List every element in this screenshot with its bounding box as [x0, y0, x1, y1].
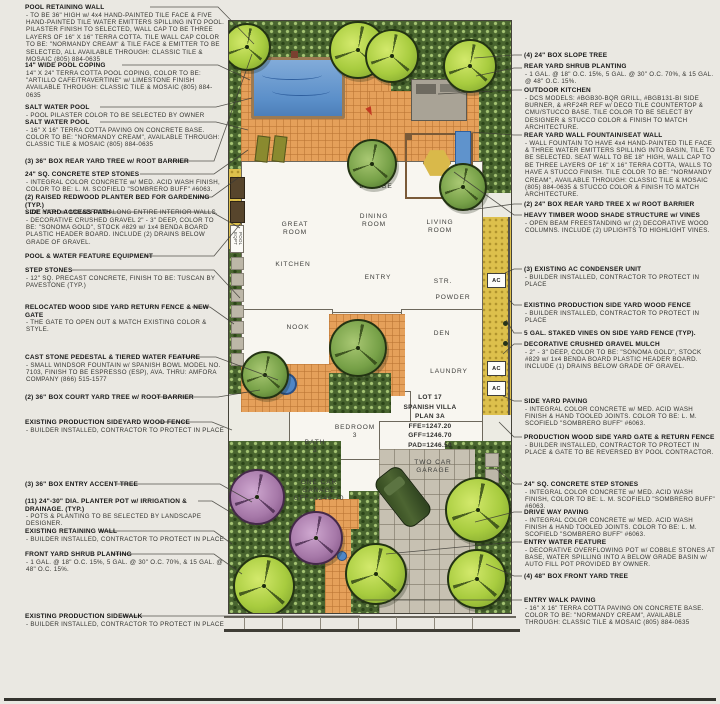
front-yard-tree-symbol [345, 543, 407, 605]
note-side-yard-paving: SIDE YARD PAVING- INTEGRAL COLOR CONCRET… [524, 398, 716, 428]
rear-yard-tree-symbol [365, 29, 419, 83]
note-pool-deck-paving: SALT WATER POOL- 16" X 16" TERRA COTTA P… [25, 119, 225, 149]
note-salt-water-pool: SALT WATER POOL- POOL PILASTER COLOR TO … [25, 104, 225, 119]
pool-wave-line [262, 70, 322, 80]
note-side-yard-gate: PRODUCTION WOOD SIDE YARD GATE & RETURN … [524, 434, 716, 456]
salt-water-pool [251, 57, 345, 119]
bbq-grill [416, 84, 436, 94]
sidewalk-joint [358, 617, 359, 629]
sidewalk-joint [396, 617, 397, 629]
note-court-yard-tree: (2) 36" BOX COURT YARD TREE w/ ROOT BARR… [25, 394, 225, 402]
front-yard-tree-symbol [445, 477, 511, 543]
rear-yard-tree-symbol [347, 139, 397, 189]
pool-pilaster [291, 51, 298, 58]
front-yard-tree-symbol [447, 549, 507, 609]
note-existing-retaining-wall: EXISTING RETAINING WALL- BUILDER INSTALL… [25, 528, 225, 543]
court-yard-tree-symbol [241, 351, 289, 399]
note-rear-yard-shrub-planting: REAR YARD SHRUB PLANTING- 1 GAL. @ 18" O… [524, 63, 716, 85]
note-front-yard-shrub-planting: FRONT YARD SHRUB PLANTING- 1 GAL. @ 18" … [25, 551, 225, 573]
note-front-yard-tree: (4) 48" BOX FRONT YARD TREE [524, 573, 716, 581]
sidewalk-joint [320, 617, 321, 629]
room-label-kitchen: KITCHEN [267, 261, 319, 269]
courtyard-planting [329, 373, 391, 413]
entry-accent-tree-symbol [289, 511, 343, 565]
note-step-stones-right: 24" SQ. CONCRETE STEP STONES- INTEGRAL C… [524, 481, 716, 511]
step-stone [231, 273, 244, 286]
site-plan-sheet: POOL EQPT AC AC AC GREAT ROOM LOUNGE DIN… [0, 0, 720, 704]
site-plan-drawing: POOL EQPT AC AC AC GREAT ROOM LOUNGE DIN… [228, 20, 512, 614]
staked-vine [503, 341, 508, 346]
sidewalk-joint [472, 617, 473, 629]
note-concrete-step-stones: 24" SQ. CONCRETE STEP STONES- INTEGRAL C… [25, 171, 225, 193]
note-entry-accent-tree: (3) 36" BOX ENTRY ACCENT TREE [25, 481, 225, 489]
note-existing-sidewalk: EXISTING PRODUCTION SIDEWALK- BUILDER IN… [25, 613, 225, 628]
label-two-car-garage: TWO CAR GARAGE [401, 459, 465, 475]
staked-vine [503, 321, 508, 326]
side-yard-fence [508, 217, 510, 415]
pool-equipment-tag: POOL EQPT [230, 225, 244, 253]
room-label-laundry: LAUNDRY [421, 368, 477, 376]
note-staked-vines: 5 GAL. STAKED VINES ON SIDE YARD FENCE (… [524, 330, 716, 338]
lot-title-block: LOT 17 SPANISH VILLA PLAN 3A FFE=1247.20… [387, 393, 473, 450]
sidewalk-joint [434, 617, 435, 629]
front-yard-tree-symbol [233, 555, 295, 614]
note-entry-walk-paving: ENTRY WALK PAVING- 16" X 16" TERRA COTTA… [524, 597, 716, 627]
room-label-bath: BATH 3 [299, 439, 331, 455]
note-pool-retaining-wall: POOL RETAINING WALL- TO BE 36" HIGH w/ 4… [25, 4, 225, 63]
room-label-bedroom: BEDROOM 3 [329, 424, 381, 440]
room-label-den: DEN [425, 330, 459, 338]
ac-condenser-unit: AC [487, 273, 506, 288]
note-side-yard-access-path: SIDE YARD ACCESS PATH- DECORATIVE CRUSHE… [25, 209, 225, 246]
step-stone [231, 257, 244, 270]
curb-line [224, 629, 520, 632]
note-slope-tree: (4) 24" BOX SLOPE TREE [524, 52, 716, 60]
note-rear-yard-tree-x: (2) 24" BOX REAR YARD TREE X w/ ROOT BAR… [524, 201, 716, 209]
ac-condenser-unit: AC [487, 381, 506, 396]
car-windshield [383, 475, 406, 496]
room-label-nook: NOOK [273, 324, 323, 332]
wood-column [407, 135, 412, 140]
room-label-living-room: LIVING ROOM [415, 219, 465, 235]
note-driveway-paving: DRIVE WAY PAVING- INTEGRAL COLOR CONCRET… [524, 509, 716, 539]
room-label-stairs: STR. [427, 278, 459, 286]
step-stone [485, 453, 499, 467]
step-stone [231, 353, 244, 366]
room-label-dining-room: DINING ROOM [349, 213, 399, 229]
note-step-stones: STEP STONES- 12" SQ. PRECAST CONCRETE, F… [25, 267, 225, 289]
sidewalk-joint [244, 617, 245, 629]
ac-condenser-unit: AC [487, 361, 506, 376]
court-yard-tree-symbol [329, 319, 387, 377]
sidewalk-joint [282, 617, 283, 629]
pool-wave-line [272, 86, 330, 96]
raised-planter-bed [230, 201, 245, 223]
step-stone [231, 289, 244, 302]
rear-yard-tree-symbol [439, 163, 487, 211]
note-rear-yard-tree: (3) 36" BOX REAR YARD TREE w/ ROOT BARRI… [25, 158, 225, 166]
step-stone [231, 321, 244, 334]
sheet-edge [4, 698, 716, 701]
note-gravel-mulch: DECORATIVE CRUSHED GRAVEL MULCH- 2" - 3"… [524, 341, 716, 371]
note-outdoor-kitchen: OUTDOOR KITCHEN- DCS MODELS: #BGB30-BQR … [524, 87, 716, 132]
note-tiered-water-feature: CAST STONE PEDESTAL & TIERED WATER FEATU… [25, 354, 225, 384]
slope-tree-symbol [443, 39, 497, 93]
note-existing-side-yard-fence: EXISTING PRODUCTION SIDE YARD WOOD FENCE… [524, 302, 716, 324]
note-planter-pot: (11) 24"-30" DIA. PLANTER POT w/ IRRIGAT… [25, 498, 225, 528]
note-pool-equipment: POOL & WATER FEATURE EQUIPMENT [25, 253, 225, 261]
room-label-great-room: GREAT ROOM [269, 221, 321, 237]
room-label-powder: POWDER [429, 294, 477, 302]
note-pool-coping: 14" WIDE POOL COPING14" X 24" TERRA COTT… [25, 62, 225, 99]
step-stone [231, 337, 244, 350]
entry-accent-tree-symbol [229, 469, 285, 525]
raised-planter-bed [230, 177, 245, 199]
note-shade-structure: HEAVY TIMBER WOOD SHADE STRUCTURE w/ VIN… [524, 212, 716, 234]
note-ac-condenser: (3) EXISTING AC CONDENSER UNIT- BUILDER … [524, 266, 716, 288]
note-relocated-fence-gate: RELOCATED WOOD SIDE YARD RETURN FENCE & … [25, 304, 225, 334]
note-wall-fountain-seat-wall: REAR YARD WALL FOUNTAIN/SEAT WALL- WALL … [524, 132, 716, 199]
step-stone [231, 305, 244, 318]
wall-fountain-basin [455, 131, 471, 167]
note-existing-sideyard-fence: EXISTING PRODUCTION SIDEYARD WOOD FENCE-… [25, 419, 225, 434]
room-label-entry: ENTRY [357, 274, 399, 282]
label-one-car-garage: ONE CAR GARAGE GFF=1246.70 [287, 479, 351, 503]
note-entry-water-feature: ENTRY WATER FEATURE- DECORATIVE OVERFLOW… [524, 539, 716, 569]
